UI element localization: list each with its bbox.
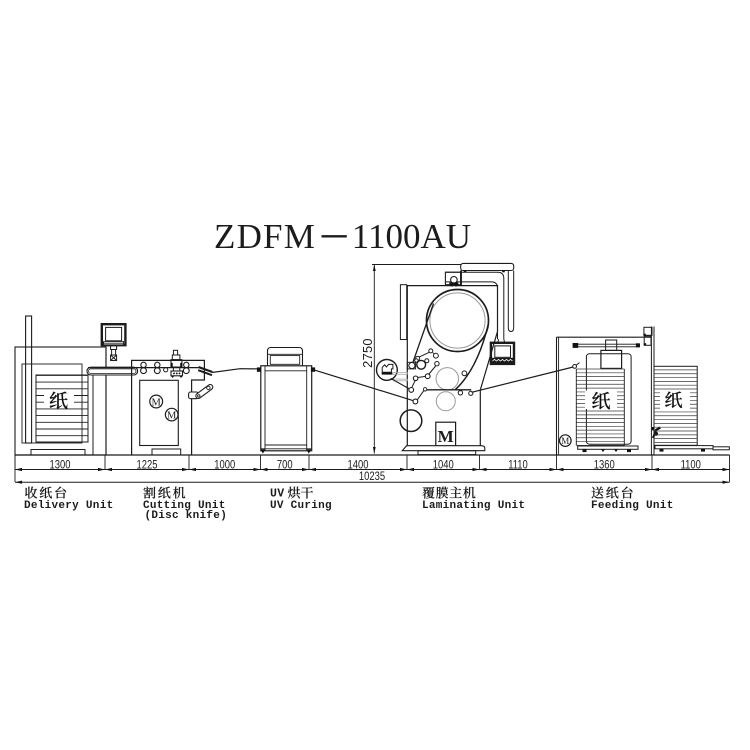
svg-text:10235: 10235 bbox=[359, 470, 385, 483]
svg-text:1110: 1110 bbox=[508, 458, 528, 471]
svg-text:Delivery Unit: Delivery Unit bbox=[24, 500, 113, 512]
svg-text:1100AU: 1100AU bbox=[352, 217, 471, 256]
svg-text:M: M bbox=[167, 410, 177, 421]
svg-text:ZDFM: ZDFM bbox=[214, 217, 316, 256]
svg-text:1100: 1100 bbox=[681, 458, 701, 471]
svg-text:1360: 1360 bbox=[594, 458, 615, 471]
svg-text:700: 700 bbox=[277, 458, 293, 471]
svg-text:1000: 1000 bbox=[214, 458, 235, 471]
svg-text:(Disc knife): (Disc knife) bbox=[145, 510, 228, 522]
svg-text:1225: 1225 bbox=[137, 458, 158, 471]
svg-text:Feeding Unit: Feeding Unit bbox=[591, 500, 674, 512]
svg-text:UV: UV bbox=[270, 488, 284, 501]
svg-text:1040: 1040 bbox=[433, 458, 454, 471]
svg-text:Laminating Unit: Laminating Unit bbox=[422, 500, 525, 512]
svg-text:M: M bbox=[152, 397, 162, 408]
svg-text:M: M bbox=[438, 427, 454, 446]
svg-text:UV Curing: UV Curing bbox=[270, 500, 332, 512]
svg-text:1300: 1300 bbox=[50, 458, 71, 471]
svg-text:2750: 2750 bbox=[360, 338, 375, 368]
svg-text:M: M bbox=[561, 436, 569, 446]
